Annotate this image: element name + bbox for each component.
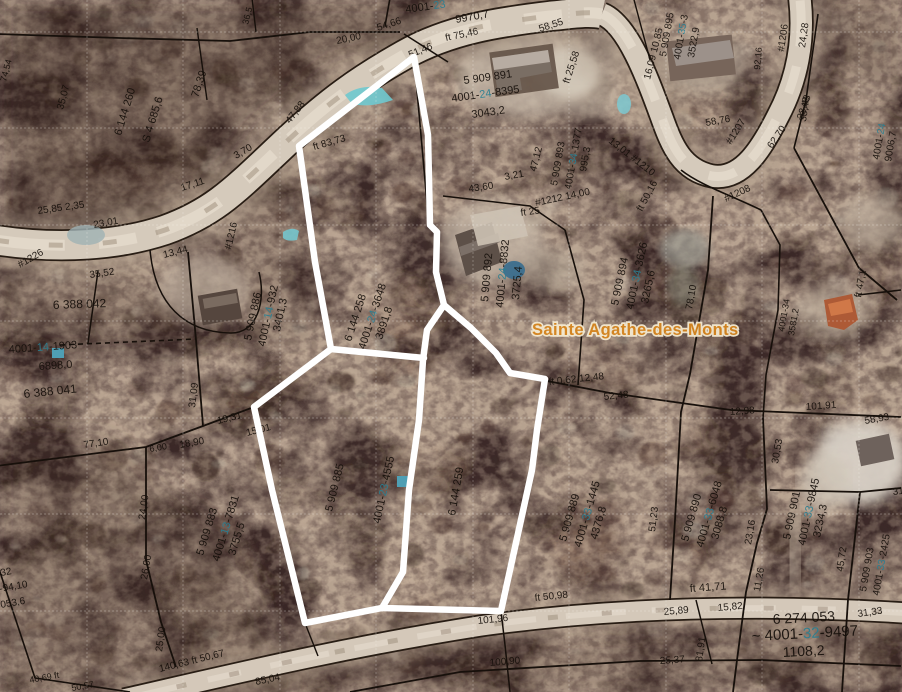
svg-text:92,16: 92,16 xyxy=(752,47,764,70)
svg-text:25,37: 25,37 xyxy=(659,654,685,667)
svg-text:101,91: 101,91 xyxy=(805,400,837,413)
svg-text:31: 31 xyxy=(892,486,902,498)
svg-text:15,82: 15,82 xyxy=(717,601,743,614)
svg-text:6 388 042: 6 388 042 xyxy=(53,296,107,312)
svg-text:12,98: 12,98 xyxy=(729,405,755,418)
svg-text:6898,0: 6898,0 xyxy=(38,359,72,373)
svg-text:1108,2: 1108,2 xyxy=(782,642,825,660)
svg-text:Sainte Agathe-des-Monts: Sainte Agathe-des-Monts xyxy=(532,321,739,339)
svg-text:ft 41,71: ft 41,71 xyxy=(689,580,726,595)
